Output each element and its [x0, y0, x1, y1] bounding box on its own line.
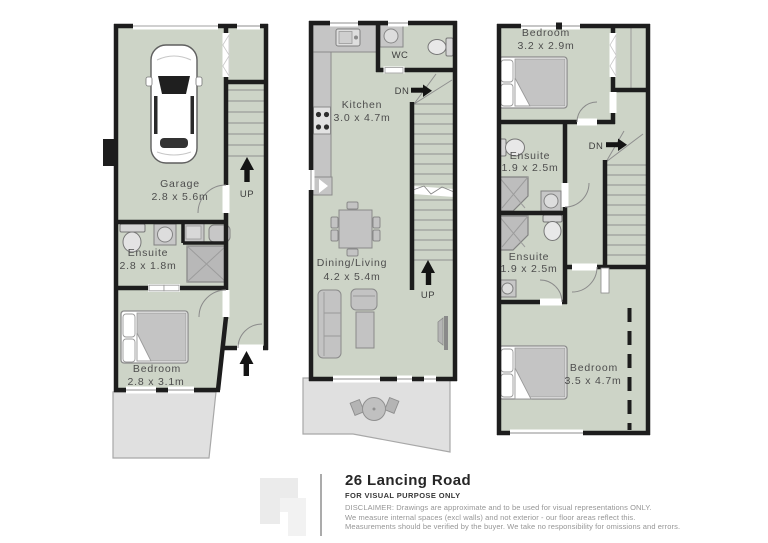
dining-living-dims: 4.2 x 5.4m: [323, 271, 380, 283]
ensuite-dims: 2.8 x 1.8m: [119, 260, 176, 272]
wc-sink-icon: [380, 25, 403, 47]
floor-plan-first: WC Kitchen 3.0 x 4.7m DN Dining/Living 4…: [303, 20, 457, 453]
bedroom-bottom-dims: 3.5 x 4.7m: [564, 375, 621, 387]
entry-arrow-icon: [240, 351, 254, 376]
coffee-table-icon: [356, 312, 374, 348]
second-bed-bottom-icon: [499, 346, 567, 399]
floor-plan-second: Bedroom 3.2 x 2.9m Ensuite 1.9 x 2.5m En…: [497, 23, 650, 437]
disclaimer-line: DISCLAIMER: Drawings are approximate and…: [345, 503, 765, 513]
laundry-tub-icon: [183, 223, 204, 242]
ground-bed-icon: [121, 311, 188, 363]
ensuite-top-dims: 1.9 x 2.5m: [501, 162, 558, 174]
stove-icon: [314, 107, 331, 134]
footer-divider: [320, 474, 322, 536]
ground-ensuite-sink-icon: [154, 224, 176, 245]
dn-label: DN: [589, 141, 604, 152]
ensuite-top-sink-icon: [541, 191, 561, 211]
garage-label: Garage: [160, 178, 200, 190]
bedroom-label: Bedroom: [133, 363, 181, 375]
floor-plan-ground: Garage 2.8 x 5.6m Ensuite 2.8 x 1.8m Bed…: [103, 23, 268, 459]
bedroom-top-label: Bedroom: [522, 27, 570, 39]
ensuite-label: Ensuite: [128, 247, 169, 259]
ground-shower-icon: [187, 246, 226, 282]
wc-toilet-icon: [428, 38, 453, 56]
bedroom-bottom-label: Bedroom: [570, 362, 618, 374]
ensuite-top-label: Ensuite: [510, 150, 551, 162]
armchair-icon: [351, 289, 377, 310]
kitchen-dims: 3.0 x 4.7m: [333, 112, 390, 124]
footer-subtitle: FOR VISUAL PURPOSE ONLY: [345, 491, 765, 500]
ensuite-bottom-label: Ensuite: [509, 251, 550, 263]
kitchen-label: Kitchen: [342, 99, 383, 111]
bedroom-dims: 2.8 x 3.1m: [127, 376, 184, 388]
disclaimer-line: We measure internal spaces (excl walls) …: [345, 513, 765, 523]
dn-label: DN: [395, 86, 410, 97]
patio: [113, 392, 216, 458]
ensuite-top-shower-icon: [499, 177, 528, 211]
dining-living-label: Dining/Living: [317, 257, 388, 269]
ensuite-bottom-toilet-icon: [543, 215, 562, 241]
sliding-door: [149, 285, 164, 291]
floor-plans-canvas: Garage 2.8 x 5.6m Ensuite 2.8 x 1.8m Bed…: [0, 0, 768, 468]
garage-dims: 2.8 x 5.6m: [151, 191, 208, 203]
bedroom-top-dims: 3.2 x 2.9m: [517, 40, 574, 52]
pocket-door: [385, 68, 403, 74]
car-icon: [146, 45, 202, 163]
ensuite-bottom-dims: 1.9 x 2.5m: [500, 263, 557, 275]
page-title: 26 Lancing Road: [345, 473, 765, 489]
ensuite-bottom-shower-icon: [499, 216, 528, 250]
up-label: UP: [421, 290, 435, 301]
wc-label: WC: [392, 50, 409, 61]
sofa-icon: [318, 290, 341, 358]
up-label: UP: [240, 189, 254, 200]
brand-logo-icon: [258, 476, 308, 538]
floorplan-page: Garage 2.8 x 5.6m Ensuite 2.8 x 1.8m Bed…: [0, 0, 768, 543]
second-washer-icon: [499, 280, 516, 297]
disclaimer-line: Measurements should be verified by the b…: [345, 522, 765, 532]
sliding-door: [164, 285, 179, 291]
footer: 26 Lancing Road FOR VISUAL PURPOSE ONLY …: [0, 470, 768, 540]
second-bed-top-icon: [499, 57, 567, 108]
wall-notch: [103, 139, 116, 166]
door-leaf: [601, 268, 609, 293]
